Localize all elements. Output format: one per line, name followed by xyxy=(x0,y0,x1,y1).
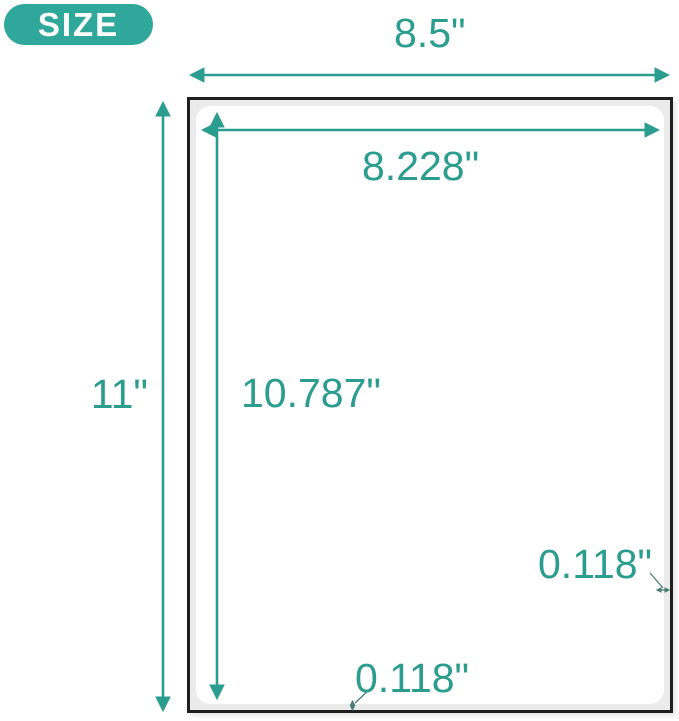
margin-right-label: 0.118" xyxy=(538,544,652,585)
label-width-label: 8.228" xyxy=(362,146,479,187)
label-height-label: 10.787" xyxy=(241,373,381,414)
margin-bottom-label: 0.118" xyxy=(355,658,469,699)
size-badge: SIZE xyxy=(4,4,153,45)
sheet-height-label: 11" xyxy=(55,374,148,415)
sheet-width-label: 8.5" xyxy=(394,13,466,54)
size-diagram: SIZE 8.5" 8.228" 11" 10.787 xyxy=(0,0,679,721)
size-badge-label: SIZE xyxy=(38,8,119,41)
